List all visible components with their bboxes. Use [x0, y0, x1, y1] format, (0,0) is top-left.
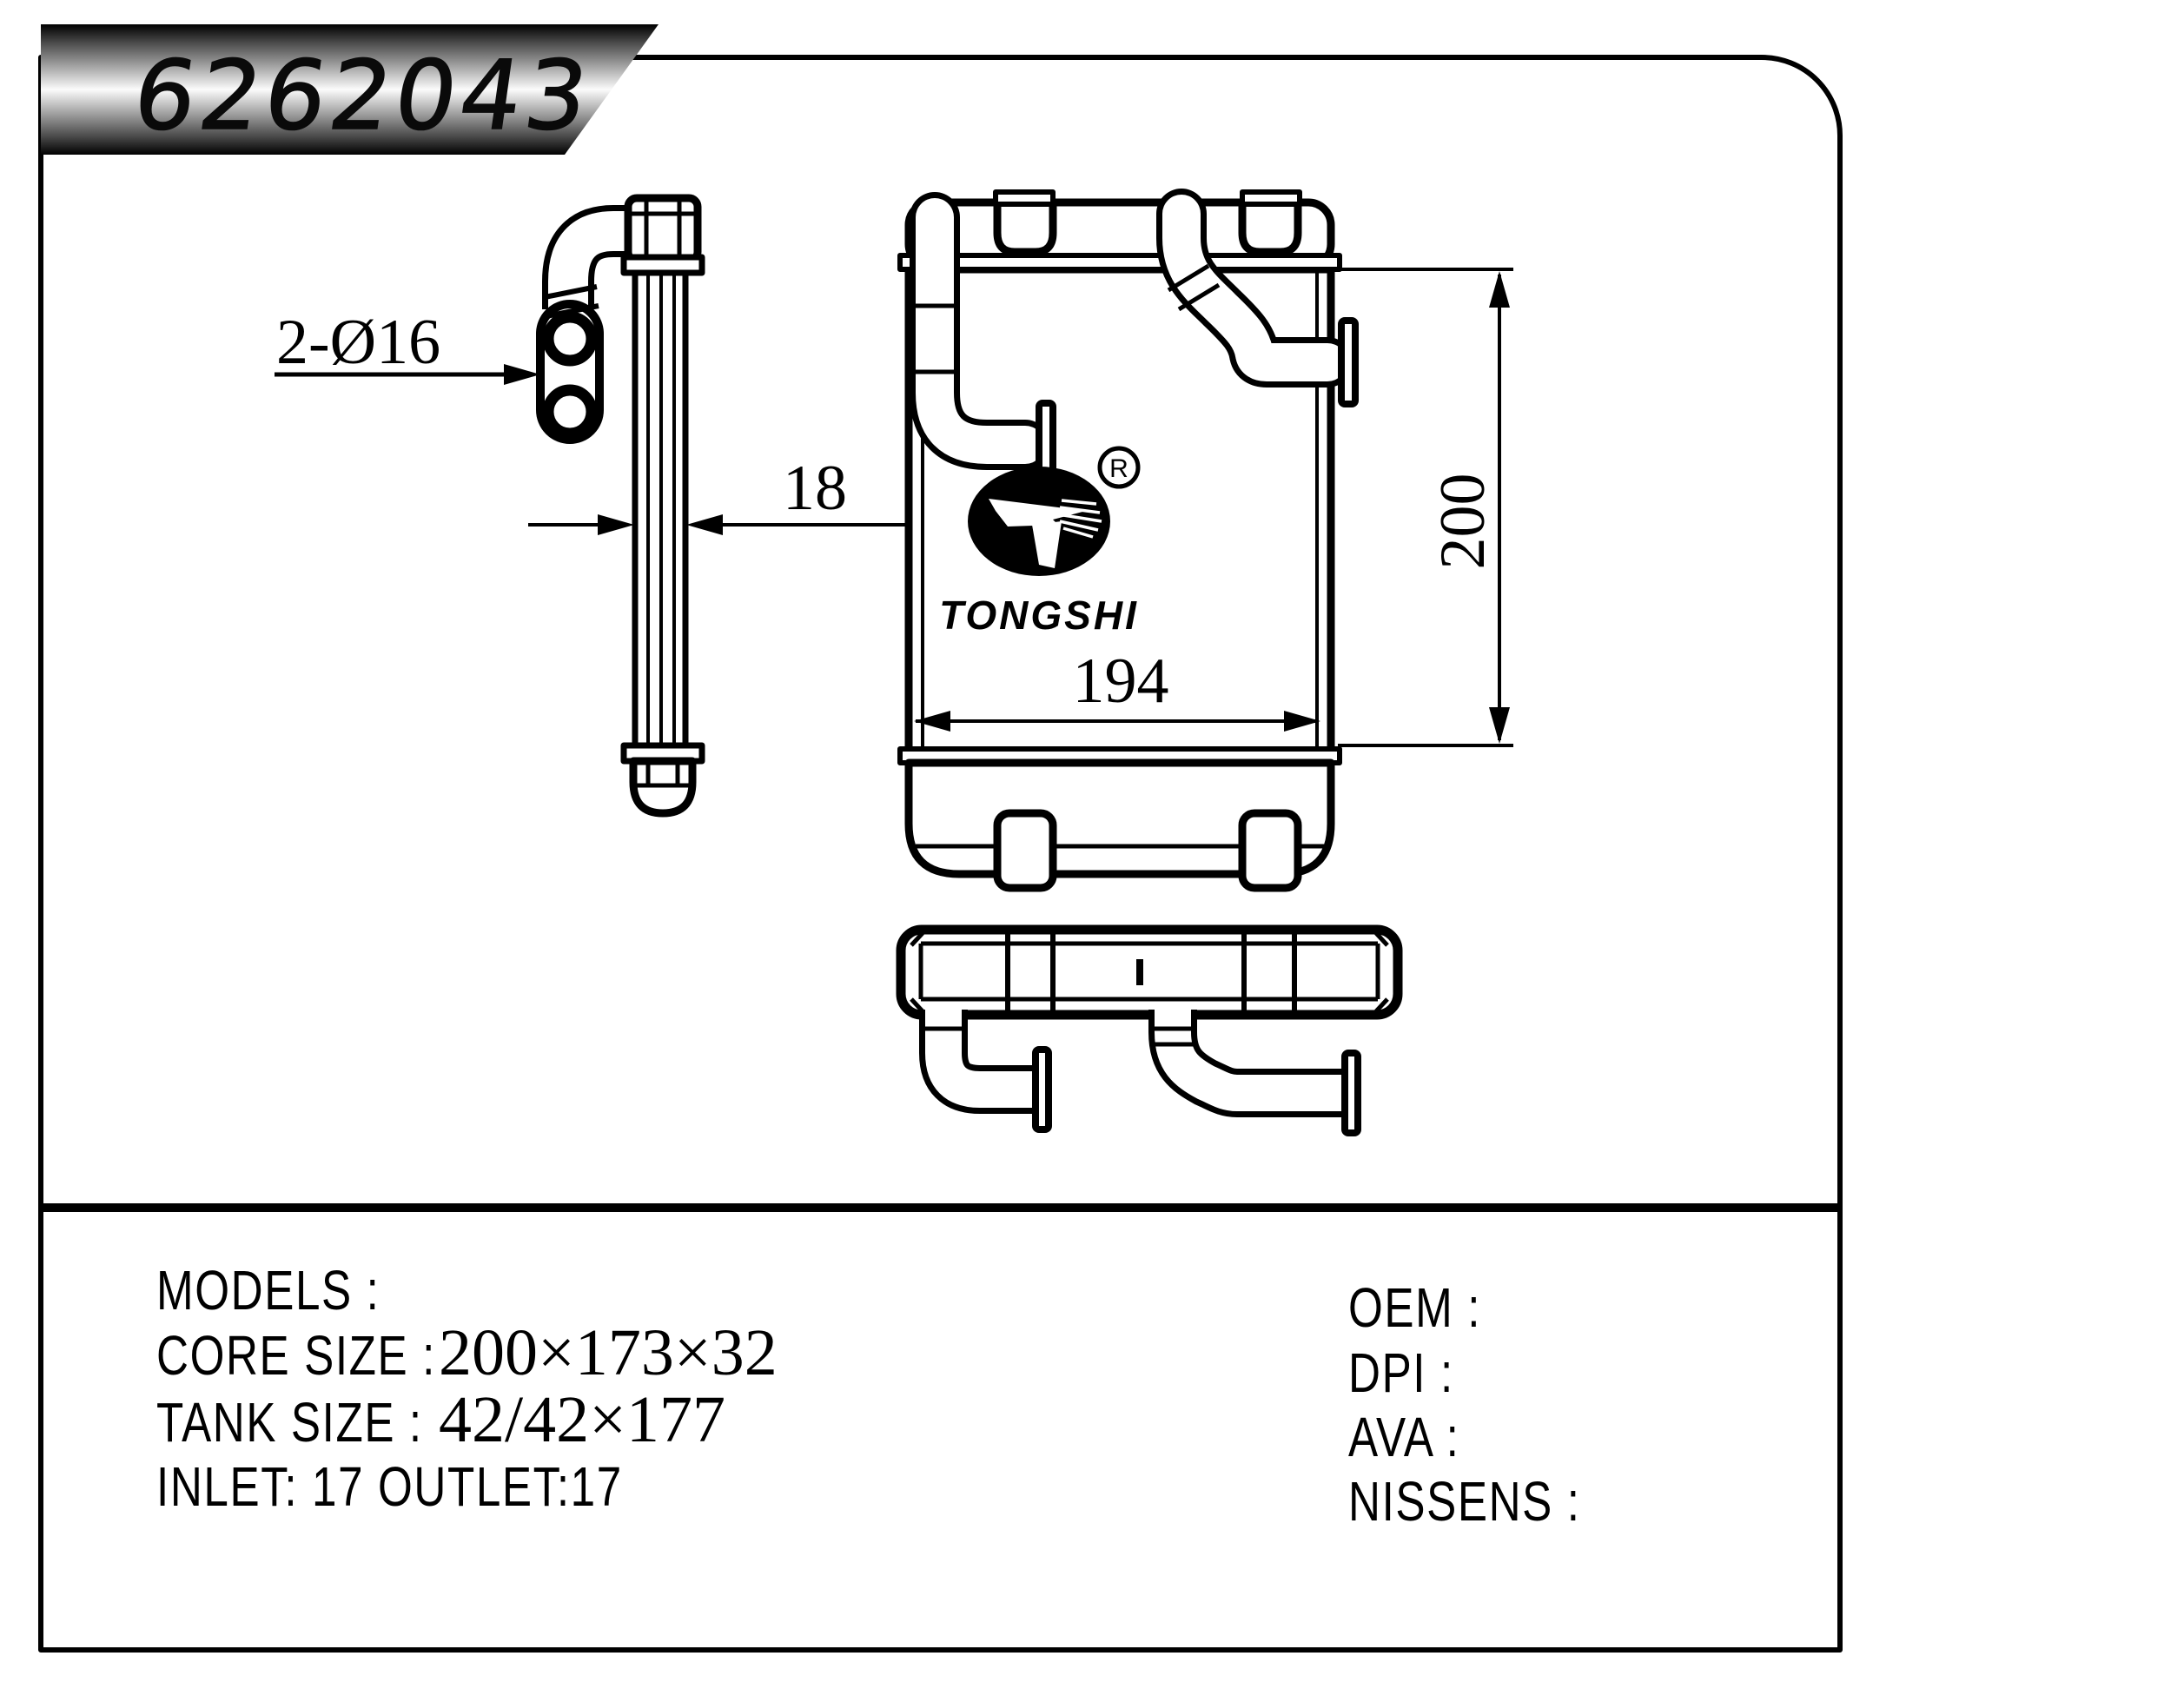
spec-core-size-label: CORE SIZE : — [156, 1326, 436, 1388]
drawing-sheet: 6262043 2-Ø16 — [0, 0, 2184, 1689]
dim-width-label: 194 — [1073, 646, 1169, 717]
tank-tab — [997, 813, 1053, 888]
registered-mark: R — [1109, 454, 1128, 483]
spec-inlet-outlet-label: INLET: 17 OUTLET:17 — [156, 1457, 623, 1519]
front-view: R TONGSHI — [900, 192, 1355, 888]
spec-tank-size-value: 42/42×177 — [439, 1383, 725, 1456]
spec-dpi-label: DPI : — [1348, 1343, 1454, 1405]
arrowhead-icon — [1489, 271, 1510, 308]
spec-models-label: MODELS : — [156, 1261, 380, 1322]
side-top-cap — [628, 198, 698, 261]
brand-name: TONGSHI — [939, 593, 1139, 638]
spec-tank-size-label: TANK SIZE : — [156, 1393, 423, 1454]
front-top-header-plate — [900, 255, 1340, 269]
bottom-view — [901, 930, 1398, 1133]
tank-tab-top — [1242, 192, 1300, 204]
center-pipe-end-cap — [1341, 321, 1355, 404]
dimension-thickness: 18 — [528, 453, 931, 535]
bottom-left-pipe — [943, 1010, 1037, 1090]
port-hole-top — [548, 317, 592, 361]
dim-thickness-label: 18 — [783, 453, 847, 524]
dimension-height: 200 — [1338, 269, 1513, 745]
dim-ports-label: 2-Ø16 — [276, 307, 440, 378]
port-hole-bottom — [548, 390, 592, 434]
title-banner: 6262043 — [41, 24, 659, 155]
arrowhead-icon — [598, 514, 634, 535]
spec-oem-label: OEM : — [1348, 1278, 1481, 1340]
part-number: 6262043 — [127, 40, 599, 151]
spec-ava-label: AVA : — [1348, 1407, 1459, 1469]
tank-tab — [1242, 813, 1298, 888]
spec-core-size-value: 200×173×32 — [439, 1316, 778, 1389]
dimension-ports: 2-Ø16 — [275, 307, 540, 385]
technical-drawing-canvas: 6262043 2-Ø16 — [0, 0, 2184, 1689]
side-view — [540, 198, 702, 813]
arrowhead-icon — [504, 364, 540, 385]
spec-block: MODELS : CORE SIZE : 200×173×32 TANK SIZ… — [156, 1261, 1581, 1533]
arrowhead-icon — [1489, 707, 1510, 744]
tank-tab-top — [996, 192, 1053, 204]
bottom-right-pipe-end-cap — [1345, 1053, 1358, 1133]
arrowhead-icon — [686, 514, 723, 535]
spec-nissens-label: NISSENS : — [1348, 1472, 1581, 1533]
dim-height-label: 200 — [1427, 474, 1499, 570]
bottom-left-pipe-end-cap — [1036, 1050, 1049, 1129]
